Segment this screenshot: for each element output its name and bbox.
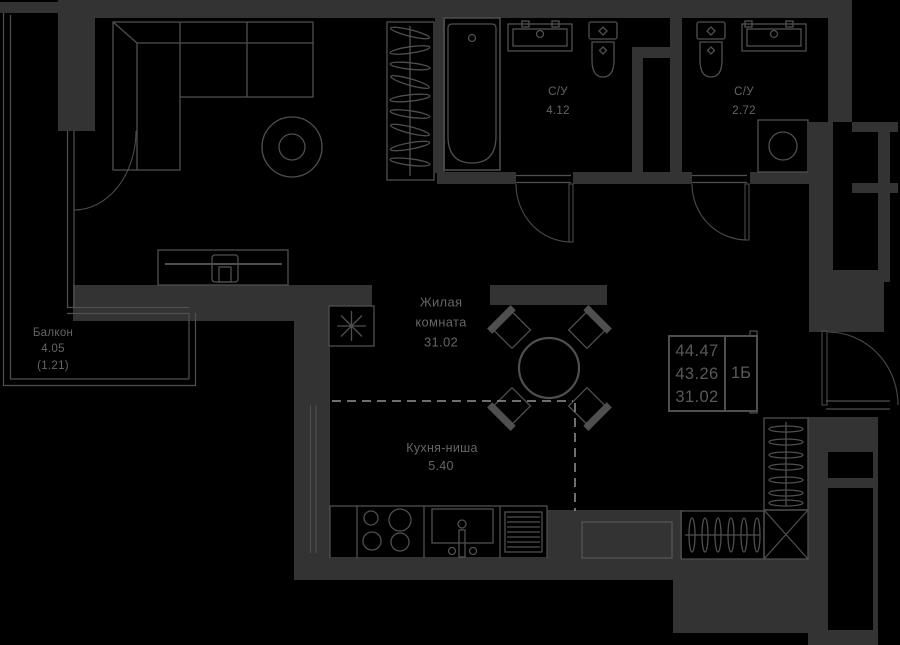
core-band-1 — [852, 122, 898, 132]
core-right-sliver — [878, 132, 890, 282]
chair-se — [566, 385, 611, 430]
living-room-label-2: комната — [415, 315, 466, 330]
shaft-x-box — [764, 510, 808, 559]
vent-shaft-asterisk — [329, 306, 374, 346]
toilet-1 — [589, 22, 617, 77]
tv-stand — [158, 250, 288, 285]
shaft-bottom — [632, 172, 682, 184]
bathroom2-label: С/У — [734, 86, 754, 98]
wall-bath1-south-a — [437, 172, 516, 184]
bath1-door-arc — [516, 184, 571, 242]
wall-south — [294, 559, 810, 580]
shaft-top — [632, 47, 682, 58]
core-openings — [828, 133, 878, 630]
bath1-door-leaf — [569, 184, 573, 242]
wall-balcony-top — [0, 2, 58, 13]
wall-bath2-south-b — [750, 172, 810, 184]
chair-nw — [488, 306, 533, 351]
wall-south-east-step — [673, 580, 810, 633]
kitchen-counter — [330, 506, 547, 558]
chair-sw — [488, 385, 533, 430]
living-room-area: 31.02 — [424, 335, 458, 350]
flat-type-badge: 1Б — [726, 337, 756, 410]
wall-bath1-south-b — [573, 172, 632, 184]
balcony-label: Балкон — [33, 327, 73, 339]
entrance-door-leaf — [822, 331, 827, 405]
bathroom2-area: 2.72 — [732, 105, 756, 117]
balcony-window-unit — [68, 131, 75, 308]
reduced-area: 43.26 — [675, 363, 718, 385]
floor-plan: Жилая комната 31.02 С/У 4.12 С/У 2.72 Ку… — [0, 0, 900, 645]
entry-wardrobe-horizontal — [681, 511, 764, 559]
living-room-label: Жилая — [420, 295, 463, 310]
bathtub — [444, 18, 500, 170]
kitchen-sink-icon — [432, 509, 493, 557]
kitchen-label: Кухня-ниша — [406, 441, 477, 455]
kitchen-area: 5.40 — [428, 459, 454, 473]
bathroom1-label: С/У — [548, 86, 568, 98]
corner-sofa — [113, 22, 313, 170]
toilet-2 — [697, 22, 725, 77]
chair-ne — [566, 306, 611, 351]
entry-wardrobe-vertical — [764, 418, 808, 510]
dining-chairs — [488, 306, 611, 430]
apartment-info-box: 44.47 43.26 31.02 1Б — [668, 335, 758, 412]
balcony-area-coeff: (1.21) — [37, 360, 69, 372]
wall-bath-divider — [670, 18, 682, 184]
dishwasher-icon — [505, 512, 542, 552]
kitchen-niche-boundary — [332, 401, 575, 511]
wall-north — [58, 0, 852, 18]
rug — [262, 117, 322, 177]
bathroom2-sink — [742, 21, 806, 51]
core-left-sliver — [828, 122, 833, 293]
wall-kitchen-east-filler — [547, 510, 682, 559]
stove-icon — [363, 509, 411, 551]
wall-west-column — [58, 0, 95, 131]
wardrobe-living — [387, 22, 434, 180]
balcony-area: 4.05 — [41, 343, 65, 355]
core-band-2 — [852, 183, 898, 193]
bath2-door-leaf — [745, 184, 749, 240]
bathroom1-area: 4.12 — [546, 105, 570, 117]
core-block — [828, 270, 884, 332]
apartment-areas: 44.47 43.26 31.02 — [670, 337, 726, 410]
living-area: 31.02 — [675, 386, 718, 408]
bathroom1-sink — [508, 21, 572, 51]
entrance-door-arc — [828, 332, 898, 405]
partition-stub — [490, 285, 607, 305]
washing-machine — [758, 120, 808, 172]
shaft-left — [632, 58, 643, 173]
wall-east-column — [828, 0, 852, 122]
total-area: 44.47 — [675, 340, 718, 362]
wall-kitchen-west — [294, 321, 330, 559]
wall-bath2-south-a — [682, 172, 692, 184]
wall-living-south — [73, 285, 372, 321]
dining-table — [519, 338, 579, 398]
bath2-door-arc — [692, 184, 747, 240]
wall-hall-east — [809, 122, 828, 332]
